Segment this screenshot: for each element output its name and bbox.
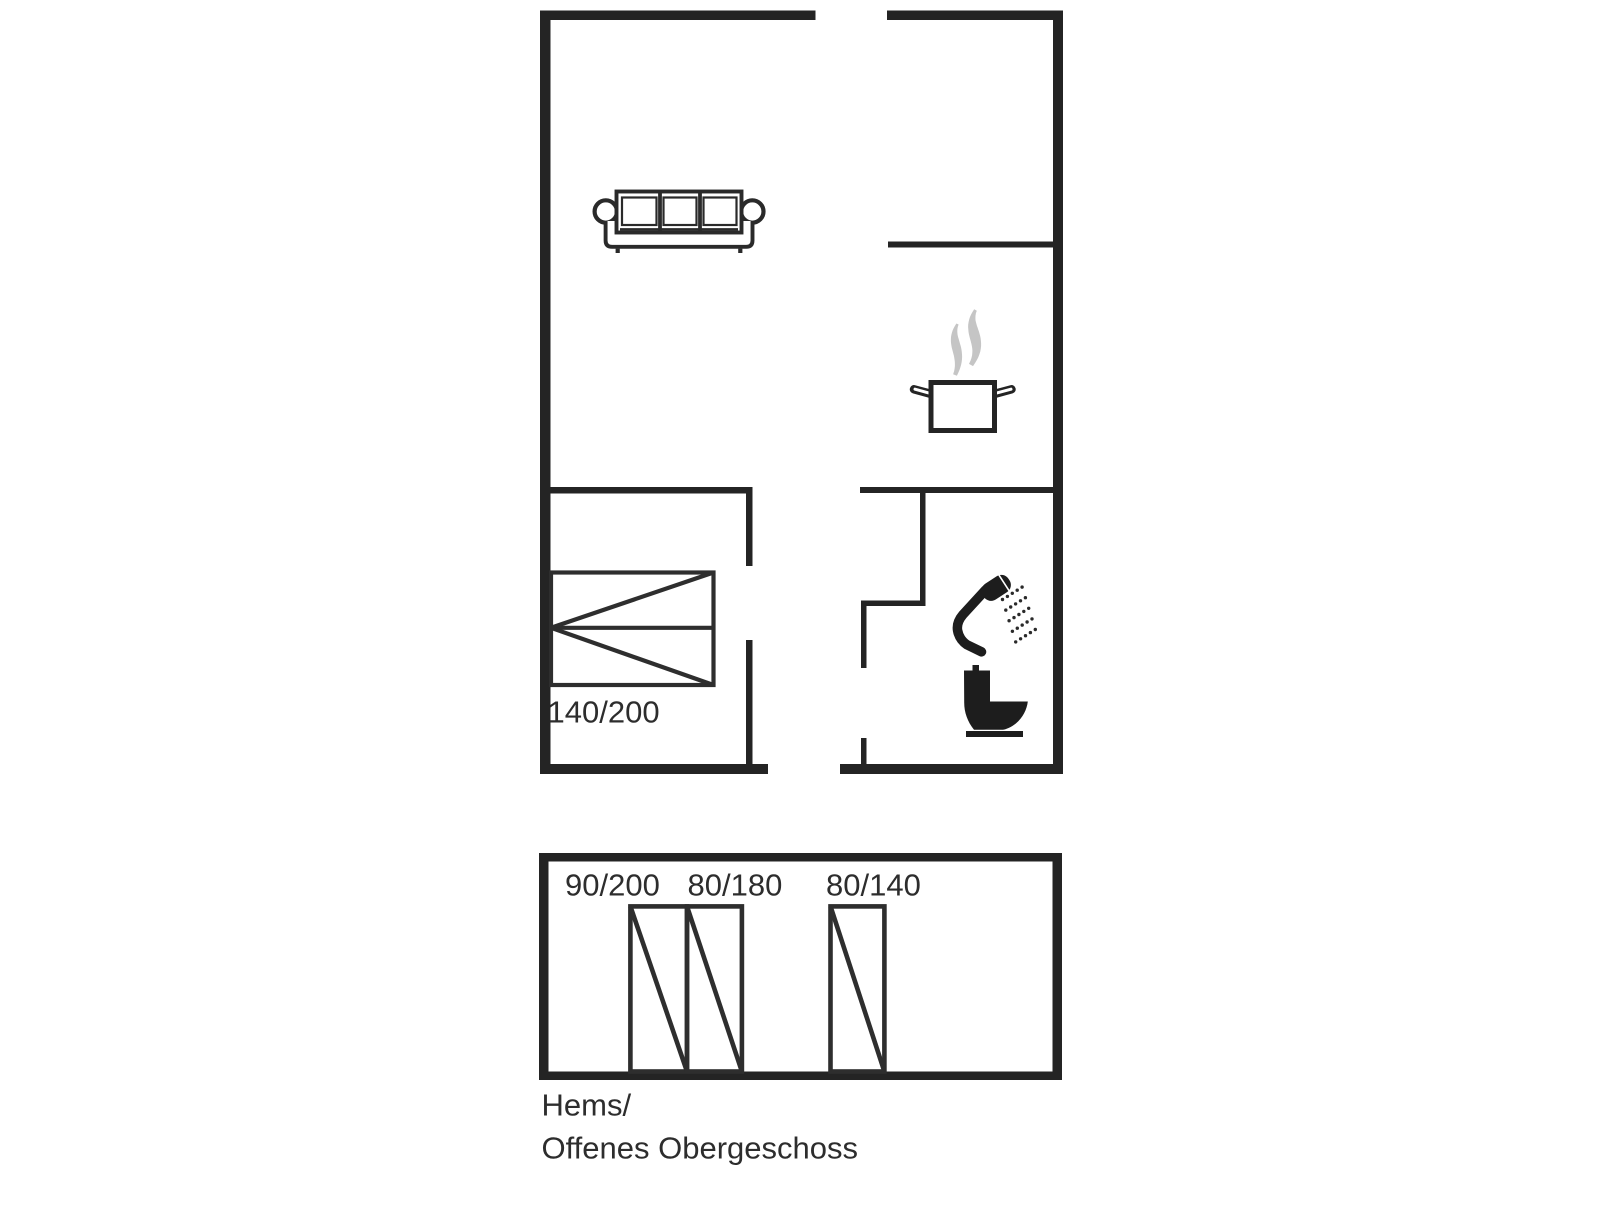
svg-text:90/200: 90/200 xyxy=(565,868,660,903)
svg-text:Hems/: Hems/ xyxy=(542,1088,632,1123)
svg-text:Offenes Obergeschoss: Offenes Obergeschoss xyxy=(542,1131,859,1166)
svg-text:80/140: 80/140 xyxy=(826,868,921,903)
svg-text:80/180: 80/180 xyxy=(688,868,783,903)
svg-text:140/200: 140/200 xyxy=(548,695,660,730)
